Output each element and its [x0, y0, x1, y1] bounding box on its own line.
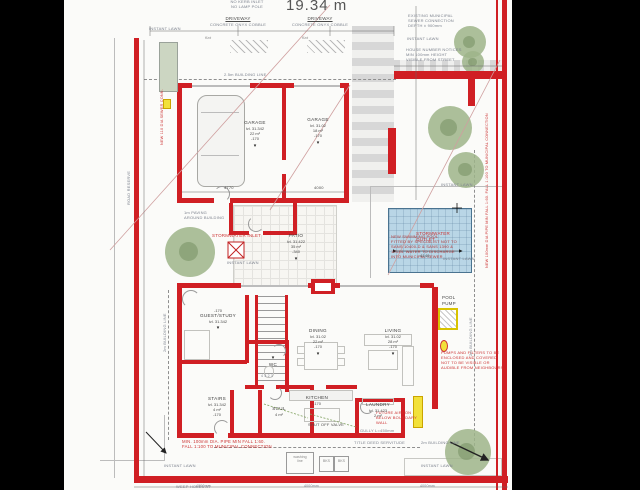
instant-lawn-label: INSTANT LAWN	[441, 182, 473, 187]
level-marker-icon: ▾	[293, 351, 343, 358]
total-width-dimension: 19.34 m	[286, 0, 347, 16]
road-reserve-label: ROAD RESERVE	[126, 145, 131, 205]
level-marker-icon: ▾	[368, 351, 418, 358]
level-marker-icon: ▾	[190, 325, 246, 332]
room-label-garage-1: GARAGE lvl. 31.342 22 m² -170 ▾	[230, 120, 280, 149]
room-area: 2 m²	[356, 413, 400, 418]
building-line-2m-vertical: 2m BUILDING LINE	[162, 292, 167, 352]
survey-cross	[452, 203, 462, 213]
flat-gradient-label: flat	[205, 35, 211, 40]
bottom-dim: 4000mm	[304, 484, 319, 488]
room-offset: -170	[293, 344, 343, 349]
instant-lawn-label: INSTANT LAWN	[421, 463, 453, 468]
paving-note: 1m PAVING AROUND BUILDING	[184, 210, 224, 220]
room-offset: -170	[230, 136, 280, 141]
garage2-dim: 4000	[314, 185, 324, 190]
instant-lawn-label: INSTANT LAWN	[164, 463, 196, 468]
room-label-kitchen: KITCHEN -170	[292, 395, 342, 406]
flat-gradient-label: flat	[302, 35, 308, 40]
bottom-dim: 4000mm	[196, 484, 211, 488]
room-offset: -170	[192, 412, 242, 417]
servitude-label: TITLE DEED SERVITUDE	[354, 440, 405, 445]
room-label-wc: ▾ WC	[260, 354, 286, 367]
room-area: 4 m²	[259, 412, 299, 417]
room-label-dining: DINING lvl. 31.02 22 m² -170 ▾	[293, 328, 343, 357]
gully-label: GULLY L=450mm	[360, 428, 394, 433]
room-offset: -170	[292, 401, 342, 406]
sewer-connection-note: EXISTING MUNICIPAL SEWER CONNECTION DEPT…	[408, 13, 454, 28]
building-line-2m-label: 2m BUILDING LINE	[421, 440, 460, 445]
room-label-scul: SCUL 4 m²	[259, 406, 299, 417]
house-number-note: HOUSE NUMBER NOTICES MIN 100mm HEIGHT VI…	[406, 47, 462, 62]
room-label-laundry: LAUNDRY lvl. 31.423 2 m²	[356, 402, 400, 418]
driveway-label: DRIVEWAY	[292, 16, 348, 22]
stair-numbers: 4 3 2 1	[261, 374, 273, 378]
site-plan-sheet: washing line BKS BKS	[64, 0, 512, 490]
ramp-arrow	[146, 432, 166, 453]
screenshot-root: { "labels": { "total_width": "19.34 m", …	[0, 0, 640, 490]
room-name: WC	[260, 362, 286, 368]
building-line-2m-vertical: 2m BUILDING LINE	[468, 296, 473, 356]
building-line-2-5m-label: 2.5m BUILDING LINE	[224, 72, 267, 77]
room-label-garage-2: GARAGE lvl. 31.02 18 m² -170 ▾	[293, 117, 343, 146]
sewer-conn-left-note: NEW 110 DIA SEWER CONN.	[160, 85, 165, 145]
pool-dim: 4149	[420, 253, 430, 258]
instant-lawn-label: INSTANT LAWN	[227, 260, 259, 265]
pipe-note-bottom: MIN. 100mm DIA. PIPE MIN FALL 1:60. FALL…	[182, 439, 272, 450]
level-marker-icon: ▾	[271, 256, 321, 263]
room-offset: -170	[293, 133, 343, 138]
room-label-stairs: STAIRS lvl. 31.342 4 m² -170	[192, 396, 242, 418]
level-marker-icon: ▾	[293, 140, 343, 147]
room-label-patio: PATIO lvl. 31.422 35 m² -340 ▾	[271, 233, 321, 262]
level-marker-icon: ▾	[230, 143, 280, 150]
pipe-note-right: NEW 100mm DIA PIPE MIN FALL 1:60. FALL 1…	[485, 98, 490, 268]
bottom-dim: 4000mm	[420, 484, 435, 488]
room-offset: -170	[368, 344, 418, 349]
stormwater-inlet-symbol	[228, 242, 244, 258]
kerb-note: NO KERB INLET NO LAMP POLE	[214, 0, 280, 9]
room-level: lvl. 31.342	[190, 319, 246, 324]
room-label-guest-study: -170 GUEST/STUDY lvl. 31.342 ▾	[190, 308, 246, 332]
garage1-dim: 4770	[224, 185, 234, 190]
driveway-sub: CONCRETE ONYX COBBLE	[284, 22, 356, 27]
pool-pump-label: POOL PUMP	[442, 295, 456, 306]
room-offset: -340	[271, 249, 321, 254]
instant-lawn-label: INSTANT LAWN	[149, 26, 181, 31]
room-label-living: LIVING lvl. 31.02 28 m² -170 ▾	[368, 328, 418, 357]
driveway-label: DRIVEWAY	[210, 16, 266, 22]
shut-off-valve-label: SHUT OFF VALVE	[308, 422, 344, 427]
driveway-sub: CONCRETE ONYX COBBLE	[202, 22, 274, 27]
stormwater-inlet-label: STORMWATER INLET	[212, 233, 261, 239]
instant-lawn-label: INSTANT LAWN	[407, 36, 439, 41]
